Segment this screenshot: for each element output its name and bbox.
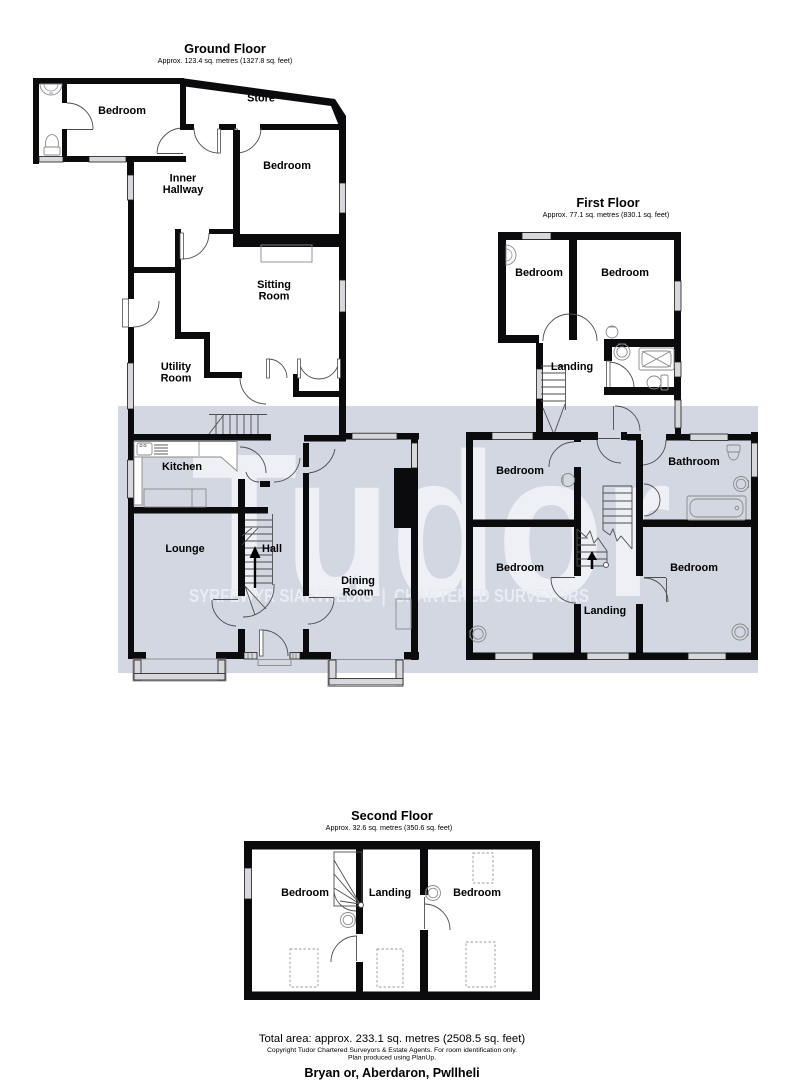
svg-text:Bedroom: Bedroom bbox=[98, 105, 146, 117]
svg-text:Kitchen: Kitchen bbox=[162, 461, 202, 473]
svg-text:Bedroom: Bedroom bbox=[281, 887, 329, 899]
svg-text:Bedroom: Bedroom bbox=[496, 562, 544, 574]
svg-text:SYRFEWYR SIARTREDIG | CHARTE: SYRFEWYR SIARTREDIG | CHARTERED SURVEYOR… bbox=[189, 586, 589, 606]
svg-text:Bedroom: Bedroom bbox=[601, 267, 649, 279]
svg-text:Bathroom: Bathroom bbox=[668, 456, 720, 468]
svg-text:Bedroom: Bedroom bbox=[670, 562, 718, 574]
svg-text:Bedroom: Bedroom bbox=[515, 267, 563, 279]
svg-text:Bedroom: Bedroom bbox=[453, 887, 501, 899]
svg-text:Utility: Utility bbox=[161, 361, 191, 373]
svg-text:Bryan or, Aberdaron, Pwllheli: Bryan or, Aberdaron, Pwllheli bbox=[304, 1066, 479, 1080]
svg-text:Hall: Hall bbox=[262, 543, 282, 555]
svg-text:Room: Room bbox=[259, 291, 290, 303]
svg-text:Copyright Tudor Chartered Surv: Copyright Tudor Chartered Surveyors & Es… bbox=[267, 1047, 517, 1054]
svg-text:Approx. 32.6 sq. metres (350.6: Approx. 32.6 sq. metres (350.6 sq. feet) bbox=[326, 823, 453, 832]
svg-text:Inner: Inner bbox=[170, 173, 197, 185]
svg-text:Total area: approx. 233.1 sq.: Total area: approx. 233.1 sq. metres (25… bbox=[259, 1033, 525, 1045]
svg-text:Lounge: Lounge bbox=[165, 543, 204, 555]
svg-text:Landing: Landing bbox=[584, 605, 626, 617]
svg-text:Landing: Landing bbox=[551, 361, 593, 373]
svg-text:Approx. 123.4 sq. metres (1327: Approx. 123.4 sq. metres (1327.8 sq. fee… bbox=[158, 56, 293, 65]
svg-text:Bedroom: Bedroom bbox=[496, 465, 544, 477]
svg-text:First Floor: First Floor bbox=[576, 195, 639, 210]
svg-text:Room: Room bbox=[343, 587, 374, 599]
svg-text:Ground Floor: Ground Floor bbox=[184, 41, 266, 56]
svg-text:Sitting: Sitting bbox=[257, 279, 291, 291]
svg-text:Dining: Dining bbox=[341, 575, 375, 587]
svg-text:Second Floor: Second Floor bbox=[351, 808, 433, 823]
svg-text:Plan produced using PlanUp.: Plan produced using PlanUp. bbox=[348, 1055, 436, 1062]
svg-text:Landing: Landing bbox=[369, 887, 411, 899]
svg-text:Approx. 77.1 sq. metres (830.1: Approx. 77.1 sq. metres (830.1 sq. feet) bbox=[543, 210, 670, 219]
svg-text:Room: Room bbox=[161, 373, 192, 385]
svg-text:Bedroom: Bedroom bbox=[263, 160, 311, 172]
svg-text:Hallway: Hallway bbox=[163, 184, 204, 196]
